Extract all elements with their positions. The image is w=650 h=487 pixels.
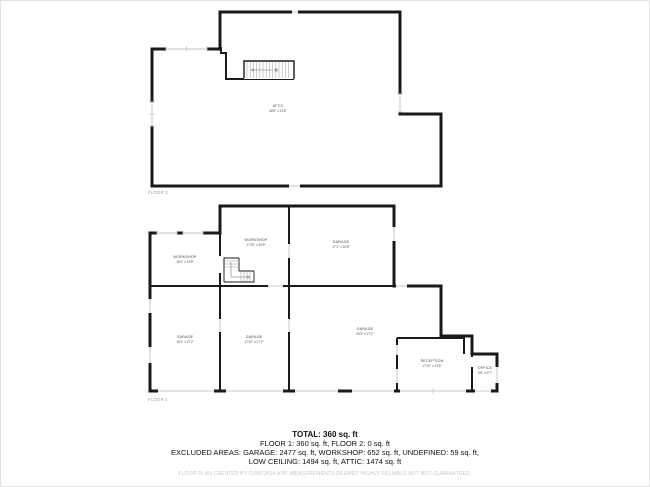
floor1-plan: WORKSHOP 18'1" x 13'8" WORKSHOP 17'10" x… — [148, 206, 500, 402]
room-dims-workshop-1: 18'1" x 13'8" — [176, 260, 193, 264]
summary-excluded-1: EXCLUDED AREAS: GARAGE: 2477 sq. ft, WOR… — [1, 448, 649, 457]
room-dims-attic: 46'6" x 31'8" — [269, 109, 286, 113]
summary-excluded-2: LOW CEILING: 1494 sq. ft, ATTIC: 1474 sq… — [1, 457, 649, 466]
room-label-attic: ATTIC — [272, 104, 283, 108]
room-label-garage-middle: GARAGE — [246, 335, 263, 339]
room-label-workshop-1: WORKSHOP — [174, 255, 197, 259]
floor-plan-svg: ATTIC 46'6" x 31'8" FLOOR 2 — [1, 1, 650, 487]
area-summary: TOTAL: 360 sq. ft FLOOR 1: 360 sq. ft, F… — [1, 430, 649, 466]
room-dims-office: 6'6" x 9'7" — [478, 371, 492, 375]
room-dims-garage-left: 18'1" x 27'2" — [176, 340, 193, 344]
room-dims-reception: 17'10" x 13'5" — [422, 364, 441, 368]
floor1-caption: FLOOR 1 — [148, 397, 168, 402]
disclaimer-text: FLOOR PLAN CREATED BY CUBICASA APP. MEAS… — [1, 471, 649, 477]
floor1-door-openings — [218, 244, 475, 367]
room-label-office: OFFICE — [478, 366, 493, 370]
floor2-plan: ATTIC 46'6" x 31'8" FLOOR 2 — [148, 10, 441, 196]
floor2-stair-wall — [221, 47, 226, 80]
room-dims-workshop-2: 17'10" x 20'8" — [246, 243, 265, 247]
room-label-workshop-2: WORKSHOP — [245, 238, 268, 242]
floor1-staircase — [224, 258, 254, 282]
room-dims-garage-top: 27'1" x 20'8" — [332, 245, 349, 249]
floor1-windows — [148, 227, 500, 383]
room-label-garage-large: GARAGE — [357, 327, 374, 331]
room-dims-garage-middle: 17'10" x 27'2" — [244, 340, 263, 344]
floor2-windows — [150, 10, 403, 189]
floor2-caption: FLOOR 2 — [148, 190, 168, 195]
room-dims-garage-large: 39'3" x 27'2" — [356, 332, 373, 336]
floor2-staircase — [244, 61, 294, 79]
summary-floors: FLOOR 1: 360 sq. ft, FLOOR 2: 0 sq. ft — [1, 439, 649, 448]
room-label-garage-top: GARAGE — [333, 240, 350, 244]
room-label-reception: RECEPTION — [421, 359, 444, 363]
summary-total: TOTAL: 360 sq. ft — [1, 430, 649, 439]
floor-plan-page: ATTIC 46'6" x 31'8" FLOOR 2 — [0, 0, 650, 487]
room-label-garage-left: GARAGE — [177, 335, 194, 339]
floor1-garage-doors — [158, 389, 491, 394]
